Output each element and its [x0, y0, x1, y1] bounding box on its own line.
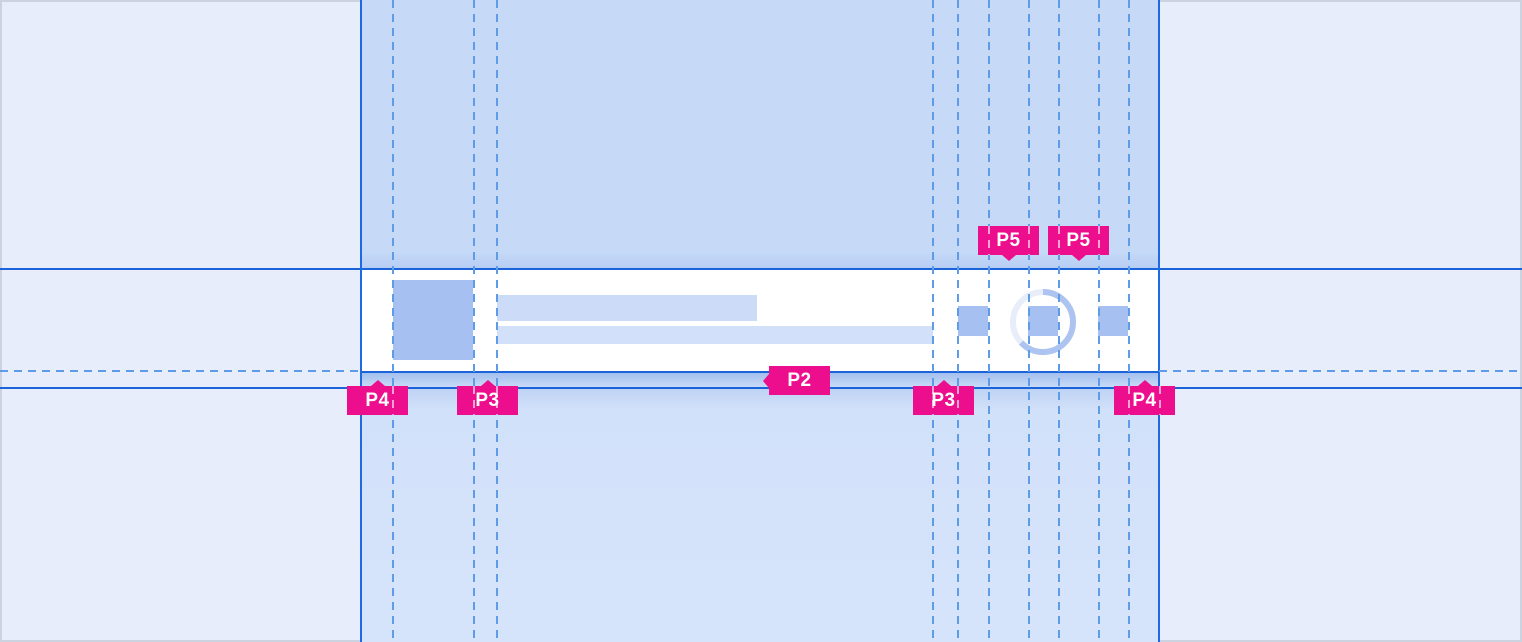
guide-line-vertical — [473, 0, 475, 642]
column-edge-right — [1158, 0, 1160, 642]
spacing-badge-p4-right: P4 — [1114, 386, 1175, 415]
column-edge-left — [360, 0, 362, 642]
badge-label: P4 — [1132, 391, 1156, 410]
guide-line-vertical — [1128, 0, 1130, 642]
guide-overlay-stripe — [496, 386, 498, 415]
avatar-placeholder — [393, 280, 473, 360]
spacing-badge-p2: P2 — [769, 366, 830, 395]
guide-overlay-stripe — [957, 386, 959, 415]
badge-pointer-down-icon — [1072, 255, 1086, 261]
icon-placeholder-2 — [1028, 306, 1058, 336]
guide-overlay-stripe — [1058, 226, 1060, 255]
badge-pointer-up-icon — [481, 380, 495, 386]
guide-overlay-stripe — [1159, 386, 1161, 415]
guide-line-vertical — [392, 0, 394, 642]
spacing-badge-p5-left: P5 — [978, 226, 1039, 255]
guide-line-vertical — [1098, 0, 1100, 642]
spacing-badge-p4-left: P4 — [347, 386, 408, 415]
spec-canvas: P4P3P2P3P4P5P5 — [0, 0, 1522, 642]
spacing-badge-p3-left: P3 — [457, 386, 518, 415]
guide-overlay-stripe — [392, 386, 394, 415]
badge-pointer-left-icon — [763, 374, 769, 388]
guide-line-vertical — [496, 0, 498, 642]
subtitle-text-placeholder — [497, 326, 933, 344]
baseline-bottom — [0, 387, 1522, 389]
layout-column-bottom — [361, 388, 1159, 642]
icon-placeholder-3 — [1098, 306, 1128, 336]
badge-pointer-up-icon — [371, 380, 385, 386]
guide-overlay-stripe — [988, 226, 990, 255]
guide-overlay-stripe — [1098, 226, 1100, 255]
guide-line-horizontal-left — [0, 370, 361, 372]
badge-label: P2 — [787, 371, 811, 390]
layout-column-top — [361, 0, 1159, 270]
guide-line-vertical — [1058, 0, 1060, 642]
badge-pointer-up-icon — [1138, 380, 1152, 386]
guide-overlay-stripe — [1128, 386, 1130, 415]
guide-line-horizontal-right — [1159, 370, 1522, 372]
badge-pointer-up-icon — [937, 380, 951, 386]
guide-line-vertical — [932, 0, 934, 642]
card-bottom-line — [361, 371, 1159, 373]
badge-label: P5 — [996, 231, 1020, 250]
baseline-top — [0, 268, 1522, 270]
badge-label: P5 — [1066, 231, 1090, 250]
guide-line-vertical — [1028, 0, 1030, 642]
badge-pointer-down-icon — [1002, 255, 1016, 261]
spacing-badge-p3-right: P3 — [913, 386, 974, 415]
guide-overlay-stripe — [473, 386, 475, 415]
icon-placeholder-1 — [958, 306, 988, 336]
badge-label: P3 — [931, 391, 955, 410]
guide-overlay-stripe — [932, 386, 934, 415]
guide-overlay-stripe — [1028, 226, 1030, 255]
badge-label: P4 — [365, 391, 389, 410]
guide-line-vertical — [988, 0, 990, 642]
spacing-badge-p5-right: P5 — [1048, 226, 1109, 255]
title-text-placeholder — [497, 295, 757, 321]
guide-line-vertical — [957, 0, 959, 642]
